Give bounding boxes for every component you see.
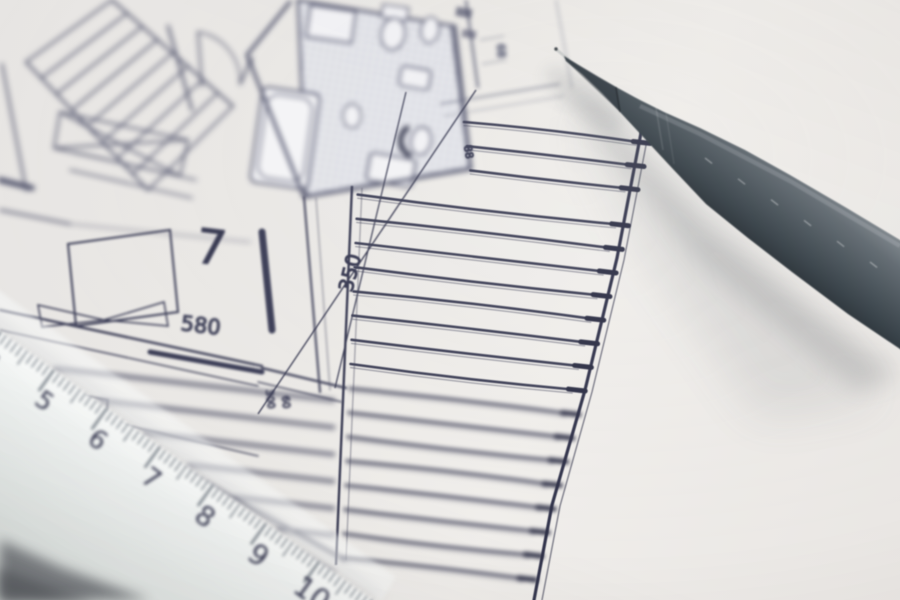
deck-board — [355, 267, 597, 295]
deck-board-end — [612, 224, 629, 226]
wall-line-thick — [262, 232, 272, 330]
wall-hatch — [461, 29, 476, 39]
deck-board-end — [556, 436, 573, 438]
deck-board-line — [344, 513, 535, 535]
deck-board-end — [587, 318, 604, 320]
deck-board — [356, 243, 604, 271]
deck-board-end — [531, 531, 548, 533]
deck-board-line — [354, 295, 591, 322]
stair-tread — [57, 27, 143, 95]
deck-board — [348, 412, 559, 436]
deck-board — [347, 437, 553, 461]
deck-board-line — [351, 368, 573, 394]
deck-board-end — [519, 578, 536, 580]
dim-tick — [480, 36, 504, 40]
stair-tread — [72, 40, 158, 110]
floor-plan-photo: 68 7 580 300 60 350 88 — [0, 0, 900, 600]
deck-board-end — [593, 295, 610, 297]
deck-board — [351, 364, 573, 390]
dim-68: 68 — [494, 43, 508, 58]
bathroom-drawing — [247, 0, 471, 197]
deck-board-end — [537, 507, 554, 509]
wall-line — [0, 210, 70, 224]
deck-board — [344, 509, 535, 531]
deck-board-end — [575, 365, 592, 367]
deck-board-line — [345, 489, 541, 512]
sink — [398, 66, 431, 91]
wash-basin — [343, 104, 361, 128]
wall-line — [247, 2, 290, 55]
deck-board — [350, 388, 567, 413]
dim-tick — [482, 60, 506, 64]
wall-line — [2, 64, 26, 190]
deck-board — [353, 316, 585, 343]
deck-board-line — [348, 416, 559, 440]
deck-board — [352, 340, 579, 366]
photo-scene: 68 7 580 300 60 350 88 — [0, 0, 900, 600]
room-number: 7 — [193, 218, 230, 277]
stair-tread — [87, 53, 173, 126]
deck-board-line — [470, 174, 625, 192]
deck-board-line — [350, 392, 567, 417]
deck-board-end — [568, 389, 585, 391]
dim-580: 580 — [179, 311, 222, 340]
staircase-drawing — [0, 0, 252, 242]
deck-board — [345, 485, 541, 508]
wall-line — [262, 368, 346, 388]
deck-board-end — [525, 554, 542, 556]
deck-board-end — [605, 247, 622, 249]
wall-hatch — [455, 7, 472, 19]
deck-board — [354, 291, 591, 318]
deck-board-line — [352, 343, 579, 369]
deck-board-end — [581, 342, 598, 344]
deck-board-end — [562, 413, 579, 415]
wall-line-thick — [0, 180, 32, 188]
deck-board-end — [599, 271, 616, 273]
deck-board — [346, 461, 547, 484]
deck-board — [343, 533, 529, 554]
stair-tread — [26, 0, 112, 62]
dim-350: 350 — [334, 251, 367, 294]
pen-lead — [554, 47, 557, 50]
deck-board-line — [343, 537, 529, 558]
deck-board-line — [353, 319, 585, 346]
deck-board-end — [544, 483, 561, 485]
bed-outline — [68, 230, 178, 326]
deck-board-line — [346, 464, 547, 487]
deck-board-line — [347, 440, 553, 464]
door-swing-arc — [198, 32, 240, 84]
deck-board-end — [550, 460, 567, 462]
stair-tread — [41, 13, 127, 78]
shower-tray — [306, 5, 356, 43]
stair-landing — [54, 112, 188, 176]
